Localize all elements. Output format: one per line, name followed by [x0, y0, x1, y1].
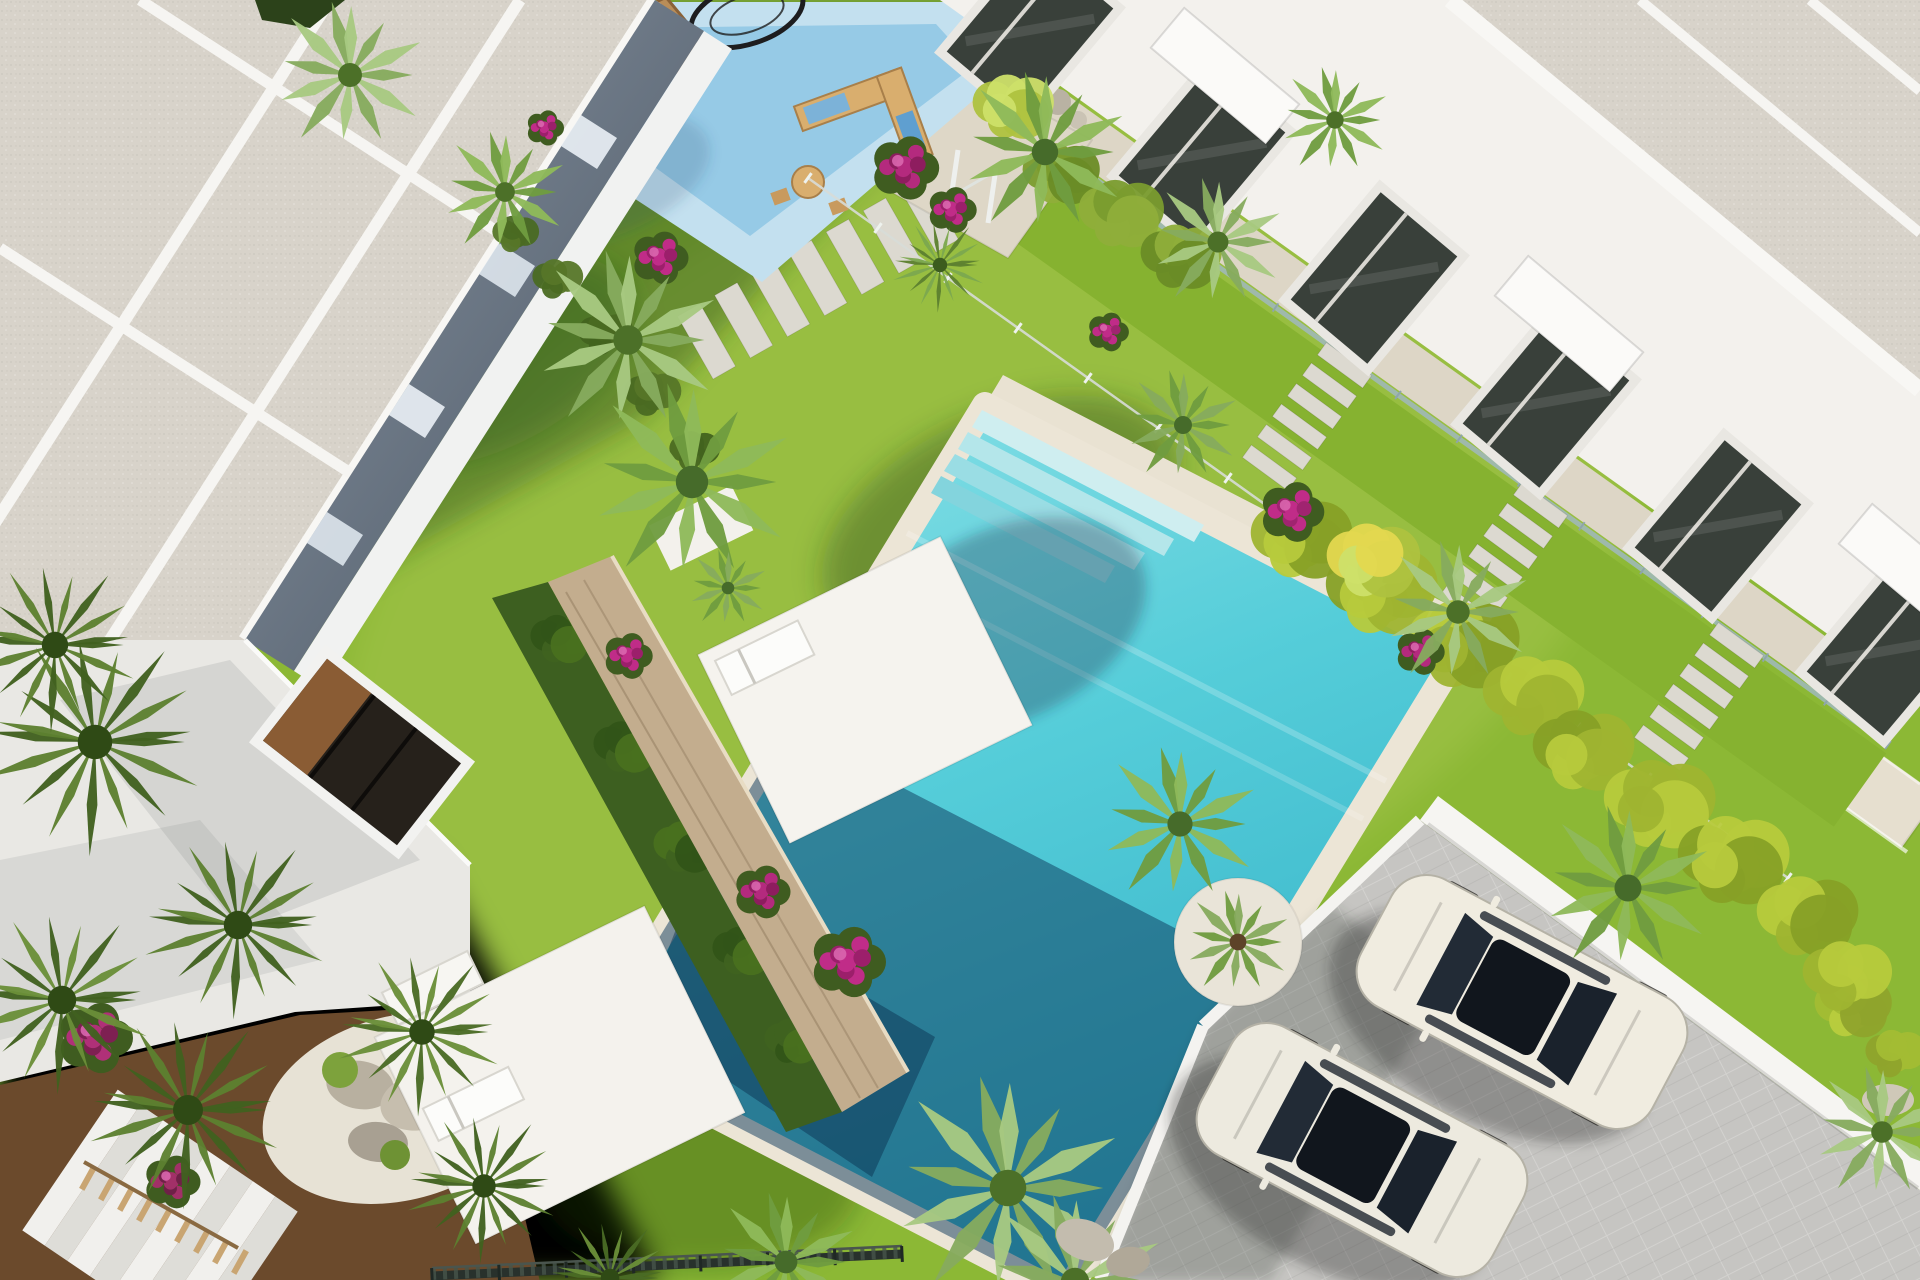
rock-grass-tuft-1 — [322, 1052, 358, 1088]
aerial-render-figure: Aerial 3D render of a residential comple… — [0, 0, 1920, 1280]
rock-grass-tuft-4 — [380, 1140, 410, 1170]
play-table — [792, 166, 824, 198]
aerial-render-scene — [0, 0, 1920, 1280]
